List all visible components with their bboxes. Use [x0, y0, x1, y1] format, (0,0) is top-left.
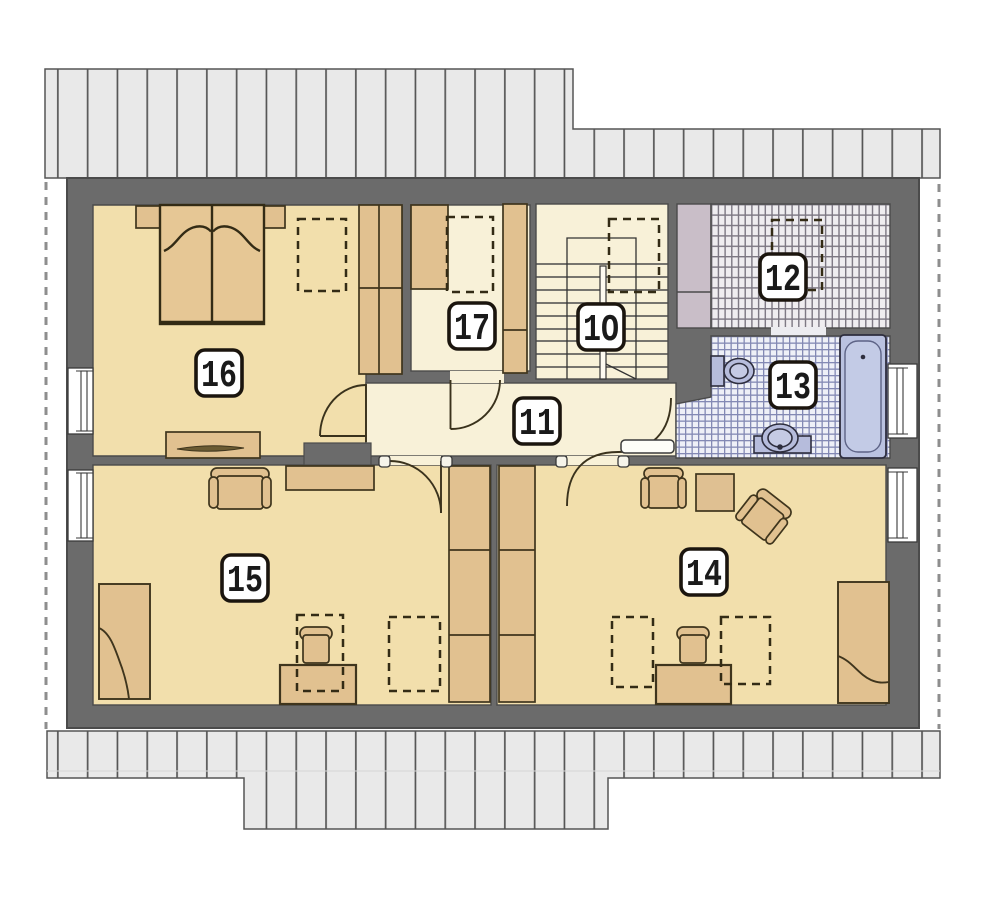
- svg-text:14: 14: [686, 554, 722, 597]
- svg-text:15: 15: [227, 560, 263, 603]
- svg-text:17: 17: [454, 308, 490, 351]
- svg-text:11: 11: [519, 403, 555, 446]
- svg-text:13: 13: [775, 367, 811, 410]
- svg-text:1O: 1O: [583, 309, 619, 352]
- svg-text:12: 12: [765, 259, 801, 302]
- svg-text:16: 16: [201, 355, 237, 398]
